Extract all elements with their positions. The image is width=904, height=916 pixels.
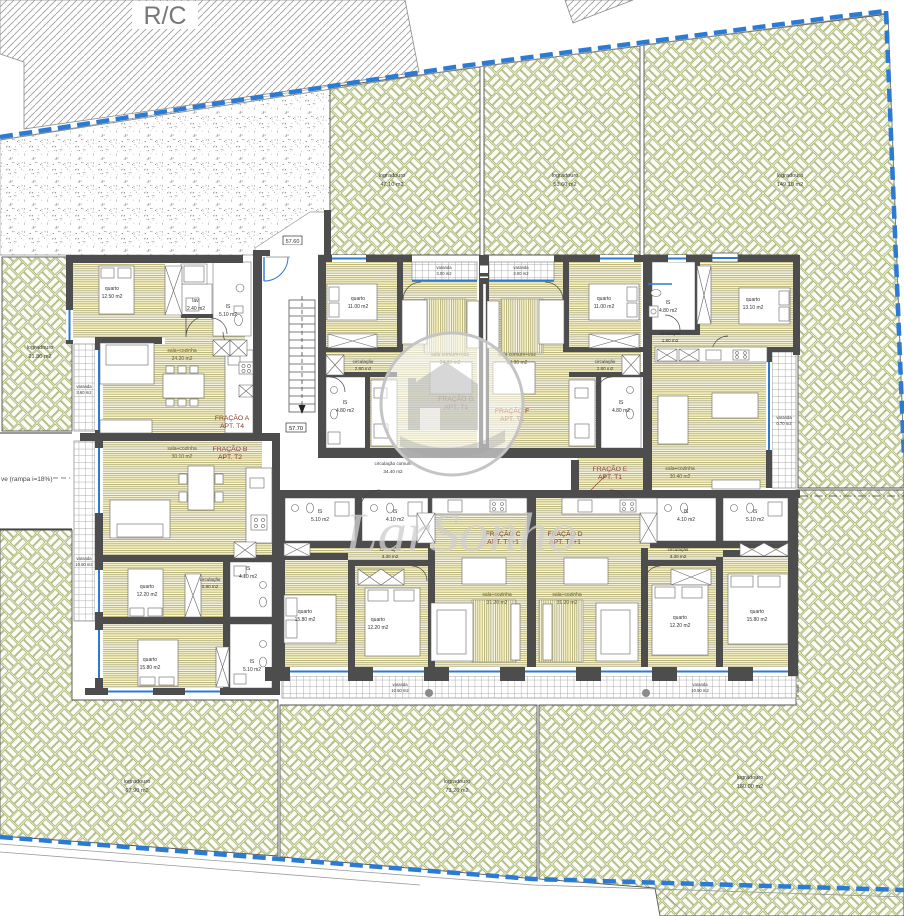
svg-text:3.00 m2: 3.00 m2	[436, 271, 452, 276]
svg-text:lav.: lav.	[192, 298, 199, 304]
svg-text:logradouro: logradouro	[379, 173, 406, 179]
svg-text:34.40 m2: 34.40 m2	[383, 469, 403, 474]
svg-text:15.80 m2: 15.80 m2	[140, 665, 161, 671]
svg-text:IS: IS	[343, 400, 348, 406]
svg-text:11.00 m2: 11.00 m2	[594, 304, 615, 310]
svg-text:2.40 m2: 2.40 m2	[187, 306, 205, 312]
svg-text:IS: IS	[226, 304, 231, 310]
svg-text:varanda: varanda	[76, 384, 92, 389]
svg-text:APT. T1: APT. T1	[598, 474, 622, 481]
svg-text:2.80 m2: 2.80 m2	[597, 366, 614, 371]
svg-text:logradouro: logradouro	[737, 775, 764, 781]
svg-text:logradouro: logradouro	[124, 779, 151, 785]
svg-text:12.20 m2: 12.20 m2	[670, 623, 691, 629]
svg-text:IS: IS	[318, 509, 323, 515]
svg-text:4.10 m2: 4.10 m2	[677, 517, 695, 523]
svg-text:circulação comum: circulação comum	[374, 461, 411, 466]
svg-text:1.80 m2: 1.80 m2	[662, 338, 679, 343]
svg-text:sala+cozinha: sala+cozinha	[167, 446, 197, 452]
svg-text:logradouro: logradouro	[777, 173, 804, 179]
svg-text:APT. T2: APT. T2	[218, 454, 242, 461]
svg-text:67.90 m2: 67.90 m2	[125, 788, 148, 794]
svg-text:0.90 m2: 0.90 m2	[202, 584, 219, 589]
svg-text:11.00 m2: 11.00 m2	[348, 304, 369, 310]
svg-text:149.10 m2: 149.10 m2	[777, 182, 803, 188]
svg-text:quarto: quarto	[371, 617, 385, 623]
svg-text:IS: IS	[619, 400, 624, 406]
svg-text:logradouro: logradouro	[444, 779, 471, 785]
svg-text:IS: IS	[666, 300, 671, 306]
svg-text:0.70 m2: 0.70 m2	[776, 421, 792, 426]
svg-text:logradouro: logradouro	[552, 173, 579, 179]
svg-text:57.70: 57.70	[289, 426, 303, 432]
svg-text:quarto: quarto	[140, 584, 154, 590]
svg-text:3.30 m2: 3.30 m2	[670, 554, 687, 559]
svg-text:circulação: circulação	[200, 577, 221, 582]
svg-text:4.80 m2: 4.80 m2	[336, 408, 354, 414]
svg-text:31.20 m2: 31.20 m2	[487, 600, 508, 606]
svg-text:3.60 m2: 3.60 m2	[76, 390, 92, 395]
svg-text:30.40 m2: 30.40 m2	[670, 474, 691, 480]
svg-text:varanda: varanda	[692, 682, 708, 687]
svg-text:13.10 m2: 13.10 m2	[743, 305, 764, 311]
svg-text:57.60: 57.60	[286, 239, 300, 245]
svg-text:quarto: quarto	[351, 296, 365, 302]
svg-text:5.10 m2: 5.10 m2	[311, 517, 329, 523]
svg-text:10.50 m2: 10.50 m2	[391, 688, 409, 693]
svg-text:3.00 m2: 3.00 m2	[513, 271, 529, 276]
svg-text:53.60 m2: 53.60 m2	[553, 182, 576, 188]
svg-text:21.80 m2: 21.80 m2	[28, 354, 51, 360]
svg-text:circulação: circulação	[595, 359, 616, 364]
svg-text:IS: IS	[753, 509, 758, 515]
svg-text:4.80 m2: 4.80 m2	[659, 308, 677, 314]
svg-text:varanda: varanda	[436, 265, 452, 270]
svg-text:2.80 m2: 2.80 m2	[355, 366, 372, 371]
svg-text:sala+cozinha: sala+cozinha	[665, 466, 695, 472]
svg-text:5.10 m2: 5.10 m2	[746, 517, 764, 523]
svg-text:sala+cozinha: sala+cozinha	[167, 348, 197, 354]
svg-text:quarto: quarto	[746, 297, 760, 303]
svg-text:circulação: circulação	[353, 359, 374, 364]
svg-text:sala+cozinha: sala+cozinha	[552, 592, 582, 598]
svg-text:IS: IS	[250, 659, 255, 665]
svg-text:24.20 m2: 24.20 m2	[172, 356, 193, 362]
svg-text:circulação: circulação	[660, 331, 681, 336]
svg-text:varanda: varanda	[392, 682, 408, 687]
svg-text:12.50 m2: 12.50 m2	[102, 294, 123, 300]
svg-text:quarto: quarto	[750, 609, 764, 615]
svg-text:quarto: quarto	[105, 286, 119, 292]
svg-text:12.20 m2: 12.20 m2	[368, 625, 389, 631]
svg-text:quarto: quarto	[143, 657, 157, 663]
svg-text:12.20 m2: 12.20 m2	[137, 592, 158, 598]
svg-text:5.10 m2: 5.10 m2	[219, 312, 237, 318]
svg-text:160.00 m2: 160.00 m2	[737, 784, 763, 790]
svg-text:sala+cozinha: sala+cozinha	[482, 592, 512, 598]
svg-text:15.80 m2: 15.80 m2	[295, 617, 316, 623]
svg-text:4.80 m2: 4.80 m2	[612, 408, 630, 414]
svg-text:logradouro: logradouro	[27, 345, 54, 351]
svg-text:10.50 m2: 10.50 m2	[75, 562, 93, 567]
svg-text:FRAÇÃO B: FRAÇÃO B	[213, 444, 248, 453]
svg-text:IS: IS	[246, 566, 251, 572]
svg-text:quarto: quarto	[298, 609, 312, 615]
svg-text:FRAÇÃO E: FRAÇÃO E	[593, 464, 628, 473]
svg-text:R/C: R/C	[143, 2, 186, 30]
svg-text:quarto: quarto	[673, 615, 687, 621]
svg-text:LarSonho: LarSonho	[344, 502, 577, 563]
svg-text:IS: IS	[684, 509, 689, 515]
svg-text:15.80 m2: 15.80 m2	[747, 617, 768, 623]
svg-text:5.10 m2: 5.10 m2	[243, 667, 261, 673]
svg-text:FRAÇÃO A: FRAÇÃO A	[215, 413, 250, 422]
svg-text:73.20 m2: 73.20 m2	[445, 788, 468, 794]
svg-text:10.50 m2: 10.50 m2	[691, 688, 709, 693]
svg-text:varanda: varanda	[76, 556, 92, 561]
svg-text:varanda: varanda	[776, 415, 792, 420]
svg-text:ve (rampa i=18%): ve (rampa i=18%)	[1, 476, 52, 483]
svg-text:47.10 m2: 47.10 m2	[380, 182, 403, 188]
svg-text:varanda: varanda	[513, 265, 529, 270]
svg-text:quarto: quarto	[597, 296, 611, 302]
svg-text:4.10 m2: 4.10 m2	[239, 574, 257, 580]
svg-text:APT. T4: APT. T4	[220, 423, 244, 430]
svg-text:31.20 m2: 31.20 m2	[557, 600, 578, 606]
svg-text:circulação: circulação	[668, 547, 689, 552]
svg-text:30.10 m2: 30.10 m2	[172, 454, 193, 460]
